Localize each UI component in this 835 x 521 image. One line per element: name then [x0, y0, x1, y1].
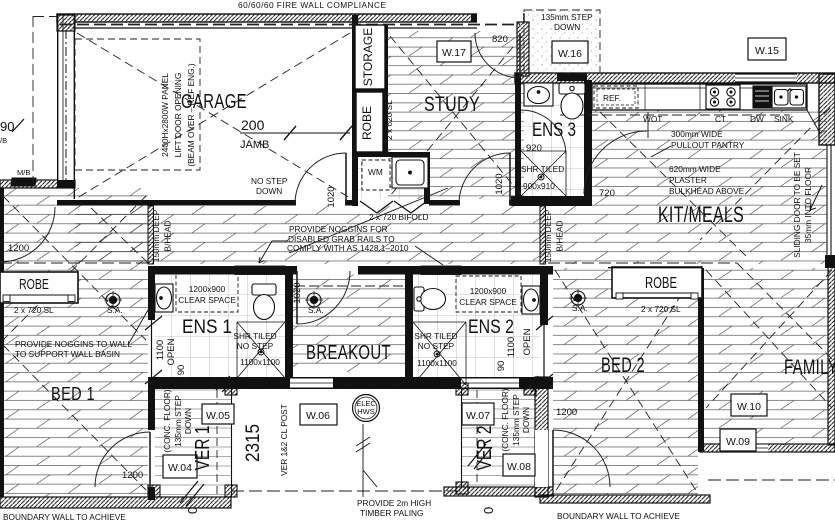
- svg-text:S.A.: S.A.: [308, 305, 324, 315]
- svg-text:DOWN: DOWN: [183, 408, 193, 434]
- svg-text:HWS: HWS: [357, 407, 375, 416]
- svg-text:135mm STEP: 135mm STEP: [541, 12, 593, 22]
- svg-text:2 x 720 BIFOLD: 2 x 720 BIFOLD: [369, 212, 429, 222]
- svg-text:620mm WIDE: 620mm WIDE: [669, 164, 721, 174]
- svg-text:STUDY: STUDY: [424, 93, 480, 116]
- svg-text:60/60/60 FIRE WALL COMPLIANCE: 60/60/60 FIRE WALL COMPLIANCE: [238, 0, 386, 10]
- svg-text:CLEAR SPACE: CLEAR SPACE: [459, 297, 517, 307]
- svg-text:DOWN: DOWN: [554, 22, 580, 32]
- svg-text:OPEN: OPEN: [522, 328, 533, 355]
- svg-text:NO STEP: NO STEP: [237, 341, 274, 351]
- svg-text:90: 90: [0, 119, 14, 134]
- svg-text:S.A.: S.A.: [572, 303, 588, 313]
- svg-text:150mm DEEP: 150mm DEEP: [151, 209, 161, 262]
- svg-text:1100: 1100: [155, 340, 166, 360]
- svg-text:WM: WM: [368, 167, 383, 177]
- svg-text:2 x 720 SL: 2 x 720 SL: [14, 305, 54, 315]
- svg-text:1100x1100: 1100x1100: [240, 357, 280, 367]
- svg-text:150mm DEEP: 150mm DEEP: [543, 209, 553, 262]
- svg-text:BOUNDARY WALL TO ACHIEVE: BOUNDARY WALL TO ACHIEVE: [3, 512, 126, 521]
- svg-text:VER 1: VER 1: [192, 426, 214, 471]
- svg-text:S.A.: S.A.: [107, 305, 123, 315]
- svg-text:SHR TILED: SHR TILED: [521, 164, 564, 174]
- svg-text:DOWN: DOWN: [521, 407, 531, 433]
- svg-text:0: 0: [481, 507, 496, 514]
- svg-text:1200: 1200: [122, 470, 143, 481]
- svg-text:BULKHEAD ABOVE: BULKHEAD ABOVE: [669, 186, 745, 196]
- svg-text:M/B: M/B: [17, 168, 30, 177]
- svg-text:2 x 620 SL: 2 x 620 SL: [384, 100, 394, 140]
- svg-text:FAMILY: FAMILY: [784, 356, 835, 379]
- svg-text:SHR TILED: SHR TILED: [233, 331, 276, 341]
- svg-text:ENS 2: ENS 2: [468, 317, 514, 338]
- svg-text:PROVIDE 2m HIGH: PROVIDE 2m HIGH: [357, 498, 431, 508]
- svg-text:W.16: W.16: [558, 48, 582, 60]
- svg-text:1020: 1020: [326, 186, 337, 207]
- svg-text:PROVIDE NOGGINS TO WALL: PROVIDE NOGGINS TO WALL: [15, 339, 132, 349]
- svg-text:1200: 1200: [556, 407, 577, 418]
- svg-text:W.07: W.07: [466, 410, 490, 422]
- svg-text:1020: 1020: [292, 282, 303, 303]
- svg-text:REF.: REF.: [603, 93, 621, 103]
- svg-text:BED 1: BED 1: [51, 384, 95, 404]
- svg-text:(CONC. FLOOR): (CONC. FLOOR): [500, 388, 510, 451]
- svg-text:ROBE: ROBE: [645, 275, 677, 292]
- svg-text:W.15: W.15: [755, 45, 779, 57]
- svg-text:LIFT DOOR OPENING: LIFT DOOR OPENING: [173, 73, 183, 158]
- svg-text:820: 820: [492, 34, 508, 45]
- svg-text:OPEN: OPEN: [166, 338, 177, 365]
- svg-text:NO STEP: NO STEP: [418, 341, 455, 351]
- svg-text:SLIDING DOOR TO BE SET: SLIDING DOOR TO BE SET: [792, 152, 802, 258]
- svg-text:BOUNDARY WALL TO ACHIEVE: BOUNDARY WALL TO ACHIEVE: [557, 511, 680, 521]
- svg-text:BREAKOUT: BREAKOUT: [306, 342, 391, 364]
- svg-text:(BEAM OVER – REF ENG.): (BEAM OVER – REF ENG.): [186, 63, 196, 167]
- svg-text:W.05: W.05: [206, 410, 230, 422]
- svg-text:1020: 1020: [494, 173, 505, 194]
- svg-text:300mm WIDE: 300mm WIDE: [671, 129, 723, 139]
- svg-text:WOT: WOT: [643, 114, 662, 124]
- svg-text:COMPLY WITH AS.1428.1–2010: COMPLY WITH AS.1428.1–2010: [287, 243, 409, 253]
- svg-text:VER 1&2 CL POST: VER 1&2 CL POST: [279, 404, 289, 476]
- svg-text:/B: /B: [0, 136, 7, 145]
- svg-text:B/HEAD: B/HEAD: [163, 221, 173, 252]
- svg-text:KIT/MEALS: KIT/MEALS: [658, 202, 744, 227]
- svg-text:CT: CT: [715, 114, 726, 124]
- svg-text:200: 200: [241, 117, 265, 133]
- svg-text:35mm INTO FLOOR: 35mm INTO FLOOR: [803, 167, 813, 243]
- svg-text:W.09: W.09: [726, 436, 750, 448]
- svg-text:PLASTER: PLASTER: [669, 175, 707, 185]
- svg-text:W.17: W.17: [442, 47, 466, 59]
- svg-text:0: 0: [185, 507, 200, 514]
- svg-text:ENS 1: ENS 1: [182, 317, 232, 338]
- svg-text:ROBE: ROBE: [19, 276, 49, 293]
- svg-text:NO STEP: NO STEP: [251, 176, 288, 186]
- svg-text:1100x1100: 1100x1100: [417, 358, 457, 368]
- svg-text:W.10: W.10: [737, 401, 761, 413]
- svg-text:90: 90: [176, 365, 187, 376]
- svg-text:SHR TILED: SHR TILED: [414, 331, 457, 341]
- svg-text:W.08: W.08: [507, 461, 531, 473]
- svg-text:1200: 1200: [8, 243, 29, 254]
- svg-text:SINK: SINK: [774, 114, 794, 124]
- svg-text:1200x900: 1200x900: [189, 284, 226, 294]
- svg-text:CLEAR SPACE: CLEAR SPACE: [178, 295, 236, 305]
- svg-text:135mm STEP: 135mm STEP: [511, 394, 521, 446]
- svg-text:1200x900: 1200x900: [470, 286, 507, 296]
- svg-text:JAMB: JAMB: [240, 139, 269, 151]
- svg-text:ROBE: ROBE: [360, 106, 374, 140]
- svg-text:ENS 3: ENS 3: [532, 120, 576, 141]
- svg-text:W.04: W.04: [168, 462, 192, 474]
- svg-text:(CONC. FLOOR): (CONC. FLOOR): [162, 389, 172, 452]
- svg-text:PULLOUT PANTRY: PULLOUT PANTRY: [671, 140, 745, 150]
- svg-text:VER 2: VER 2: [474, 426, 496, 471]
- svg-text:DOWN: DOWN: [256, 186, 282, 196]
- svg-text:TIMBER PALING: TIMBER PALING: [360, 508, 423, 518]
- svg-text:2315: 2315: [243, 424, 264, 462]
- svg-text:DW: DW: [750, 114, 764, 124]
- svg-text:135mm STEP: 135mm STEP: [173, 395, 183, 447]
- svg-text:920: 920: [526, 143, 542, 154]
- svg-text:TO SUPPORT WALL BASIN: TO SUPPORT WALL BASIN: [15, 349, 120, 359]
- svg-text:PROVIDE NOGGINS FOR: PROVIDE NOGGINS FOR: [289, 224, 388, 234]
- svg-text:900x910: 900x910: [523, 181, 555, 191]
- svg-text:720: 720: [599, 188, 615, 199]
- svg-text:2 x 720 SL: 2 x 720 SL: [641, 304, 681, 314]
- svg-text:STORAGE: STORAGE: [361, 28, 375, 86]
- svg-text:W.06: W.06: [306, 410, 330, 422]
- svg-text:BED 2: BED 2: [601, 354, 645, 377]
- svg-text:B/HEAD: B/HEAD: [555, 221, 565, 252]
- svg-text:90: 90: [496, 361, 507, 372]
- svg-text:2400Hx2800W PANEL: 2400Hx2800W PANEL: [160, 73, 170, 157]
- svg-text:1100: 1100: [506, 337, 517, 357]
